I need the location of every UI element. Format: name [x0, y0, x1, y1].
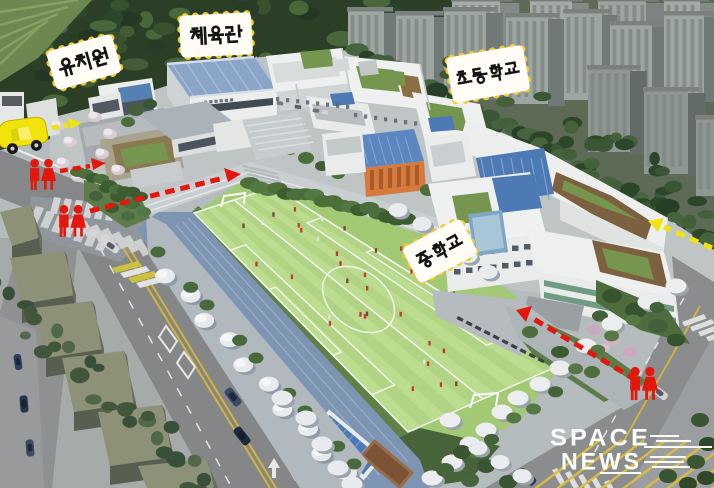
- svg-text:NEWS: NEWS: [561, 449, 642, 476]
- svg-text:SPACE: SPACE: [550, 425, 651, 452]
